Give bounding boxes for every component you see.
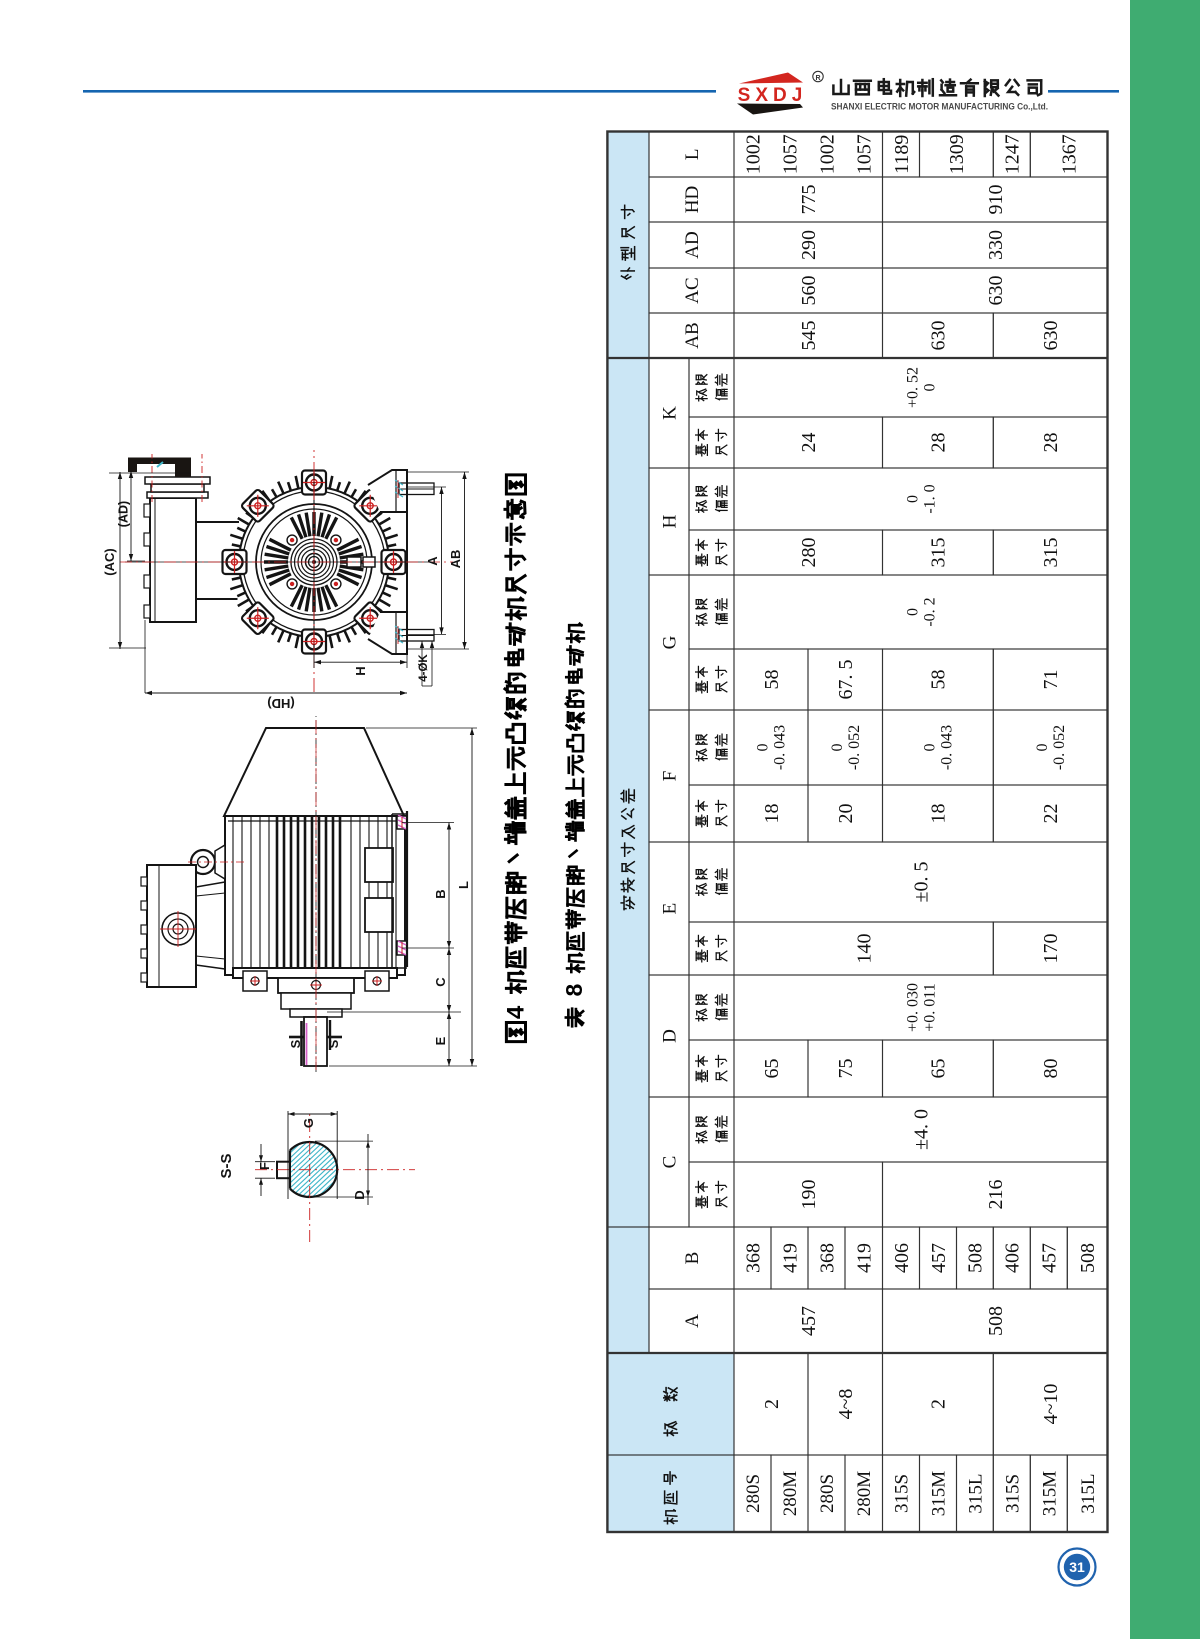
svg-text:0: 0 [1034,744,1051,752]
svg-text:(HD): (HD) [267,696,294,711]
svg-text:AD: AD [682,231,703,258]
svg-text:280S: 280S [743,1474,764,1513]
svg-text:D: D [352,1190,367,1199]
svg-text:20: 20 [835,804,857,824]
svg-text:B: B [433,889,448,898]
svg-text:C: C [660,1156,681,1169]
svg-text:F: F [257,1162,272,1170]
svg-text:630: 630 [985,276,1007,306]
svg-text:280: 280 [798,538,820,568]
svg-text:K: K [660,406,681,420]
svg-text:65: 65 [761,1059,783,1079]
svg-text:58: 58 [928,670,950,690]
svg-text:419: 419 [854,1243,876,1273]
svg-text:508: 508 [985,1306,1007,1336]
svg-text:24: 24 [798,433,820,453]
svg-text:368: 368 [742,1243,764,1273]
svg-text:315L: 315L [965,1473,986,1513]
svg-text:1002: 1002 [816,134,838,174]
svg-text:457: 457 [1039,1243,1061,1273]
svg-text:630: 630 [928,321,950,351]
svg-text:1057: 1057 [854,134,876,174]
svg-text:216: 216 [985,1180,1007,1210]
svg-text:406: 406 [891,1243,913,1273]
svg-text:457: 457 [928,1243,950,1273]
svg-text:1309: 1309 [946,134,968,174]
svg-text:2: 2 [761,1399,783,1409]
svg-text:G: G [660,635,681,649]
svg-text:(AD): (AD) [117,501,131,527]
svg-text:28: 28 [928,433,950,453]
svg-text:315: 315 [1040,538,1062,568]
svg-text:28: 28 [1040,433,1062,453]
svg-text:4: 4 [503,1005,530,1019]
svg-text:AB: AB [682,322,703,348]
svg-text:457: 457 [798,1306,820,1336]
svg-text:18: 18 [761,804,783,824]
svg-text:58: 58 [761,670,783,690]
svg-text:508: 508 [1077,1243,1099,1273]
svg-text:-0. 052: -0. 052 [846,725,863,770]
svg-text:1367: 1367 [1059,134,1081,174]
svg-text:E: E [660,903,681,915]
svg-text:C: C [433,977,448,987]
svg-text:630: 630 [1040,321,1062,351]
svg-text:(AC): (AC) [102,548,117,575]
svg-text:560: 560 [798,276,820,306]
svg-text:406: 406 [1002,1243,1024,1273]
svg-text:F: F [660,771,681,782]
svg-text:A: A [425,556,440,566]
svg-text:H: H [660,514,681,528]
svg-text:315: 315 [928,538,950,568]
svg-text:AB: AB [448,550,463,569]
svg-text:1189: 1189 [891,135,913,174]
svg-text:280S: 280S [817,1474,838,1513]
svg-text:S: S [326,1039,341,1048]
svg-text:±4. 0: ±4. 0 [911,1109,933,1150]
svg-text:0: 0 [921,384,938,392]
svg-text:910: 910 [985,185,1007,215]
svg-text:419: 419 [779,1243,801,1273]
svg-text:1247: 1247 [1002,134,1024,174]
svg-text:315M: 315M [928,1471,949,1517]
svg-text:4-ØK: 4-ØK [418,654,430,682]
svg-text:SHANXI ELECTRIC MOTOR MANUFACT: SHANXI ELECTRIC MOTOR MANUFACTURING Co.,… [831,102,1048,112]
svg-text:67. 5: 67. 5 [835,660,857,700]
svg-text:31: 31 [1069,1559,1085,1575]
svg-text:A: A [682,1314,703,1328]
svg-text:280M: 280M [854,1471,875,1517]
svg-text:+0. 011: +0. 011 [921,983,938,1031]
svg-text:AC: AC [682,277,703,303]
svg-text:L: L [682,148,703,160]
svg-text:315M: 315M [1039,1471,1060,1517]
svg-text:4~10: 4~10 [1040,1384,1062,1425]
svg-text:0: 0 [921,744,938,752]
svg-text:190: 190 [798,1180,820,1210]
svg-text:-1. 0: -1. 0 [921,484,938,513]
svg-text:-0. 043: -0. 043 [772,725,789,770]
svg-text:S: S [288,1039,303,1048]
svg-text:22: 22 [1040,804,1062,824]
svg-text:290: 290 [798,230,820,260]
svg-text:1057: 1057 [779,134,801,174]
svg-text:2: 2 [928,1399,950,1409]
svg-text:315S: 315S [891,1474,912,1513]
svg-text:S-S: S-S [218,1153,235,1178]
svg-text:140: 140 [853,934,875,964]
svg-text:775: 775 [798,185,820,215]
svg-text:0: 0 [829,744,846,752]
svg-text:L: L [456,881,471,889]
svg-text:+0. 030: +0. 030 [904,983,921,1032]
svg-text:315L: 315L [1078,1473,1099,1513]
svg-text:H: H [353,666,368,675]
svg-text:0: 0 [755,744,772,752]
svg-text:SXDJ: SXDJ [738,85,808,106]
svg-text:HD: HD [682,186,703,213]
svg-text:368: 368 [816,1243,838,1273]
svg-text:330: 330 [985,230,1007,260]
svg-text:508: 508 [965,1243,987,1273]
svg-text:75: 75 [835,1059,857,1079]
svg-text:0: 0 [904,608,921,616]
svg-text:170: 170 [1040,934,1062,964]
svg-text:315S: 315S [1002,1474,1023,1513]
svg-text:65: 65 [928,1059,950,1079]
svg-text:80: 80 [1040,1059,1062,1079]
svg-text:B: B [682,1252,703,1265]
svg-text:1002: 1002 [742,134,764,174]
svg-text:0: 0 [904,495,921,503]
svg-text:8: 8 [561,984,587,997]
svg-text:4~8: 4~8 [835,1389,857,1420]
svg-text:D: D [660,1029,681,1043]
svg-text:280M: 280M [780,1471,801,1517]
svg-text:-0. 2: -0. 2 [921,597,938,626]
svg-text:-0. 052: -0. 052 [1051,725,1068,770]
svg-text:E: E [433,1036,448,1045]
svg-text:±0. 5: ±0. 5 [911,862,933,903]
svg-text:18: 18 [928,804,950,824]
svg-text:545: 545 [798,321,820,351]
svg-text:-0. 043: -0. 043 [939,725,956,770]
svg-text:R: R [815,75,820,82]
svg-text:+0. 52: +0. 52 [904,367,921,408]
svg-text:71: 71 [1040,670,1062,690]
svg-text:G: G [301,1118,316,1128]
